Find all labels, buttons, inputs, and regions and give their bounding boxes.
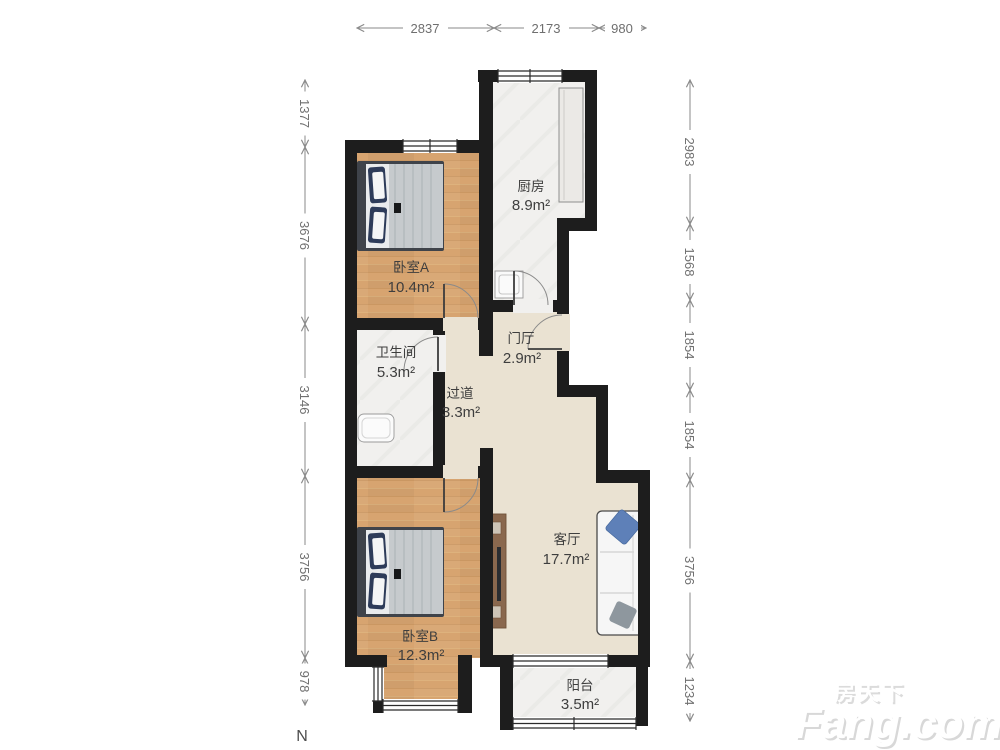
bed-a — [357, 161, 444, 251]
foyer-label: 门厅 — [508, 331, 535, 346]
kitchen-window — [498, 69, 562, 83]
kitchen-label: 厨房 — [518, 179, 545, 194]
bedroom-b-area: 12.3m² — [398, 647, 445, 664]
bedroom-a-area: 10.4m² — [388, 279, 435, 296]
dim-top-2: 2173 — [532, 21, 561, 36]
bay-window-left — [372, 667, 384, 701]
north-indicator: N — [296, 728, 308, 745]
dim-top-1: 2837 — [411, 21, 440, 36]
balcony-window — [513, 717, 636, 730]
balcony-slider — [513, 654, 608, 668]
dim-right-4: 1854 — [682, 421, 697, 450]
kitchen-sink — [495, 271, 523, 298]
bed-b — [357, 527, 444, 617]
dim-right-2: 1568 — [682, 248, 697, 277]
bedroom-a-window — [403, 139, 457, 153]
living-label: 客厅 — [554, 531, 581, 547]
sofa — [597, 509, 643, 635]
dim-left-4: 3756 — [297, 553, 312, 582]
kitchen-counter — [559, 88, 583, 202]
hallway-label: 过道 — [447, 386, 474, 401]
dim-right-5: 3756 — [682, 556, 697, 585]
hallway-area: 3.3m² — [442, 404, 480, 421]
bathroom-label: 卫生间 — [376, 345, 417, 360]
watermark-en: Fang.com — [795, 699, 1000, 748]
dim-left-2: 3676 — [297, 221, 312, 250]
dim-right-6: 1234 — [682, 677, 697, 706]
fang-watermark: 房天下 房天下 Fang.com Fang.com — [795, 681, 1000, 750]
living-area: 17.7m² — [543, 551, 590, 568]
dim-right-1: 2983 — [682, 138, 697, 167]
dim-top-3: 980 — [611, 21, 633, 36]
balcony-label: 阳台 — [567, 678, 594, 693]
kitchen-area: 8.9m² — [512, 197, 550, 214]
dim-left-1: 1377 — [297, 99, 312, 128]
foyer-area: 2.9m² — [503, 350, 541, 367]
balcony-area: 3.5m² — [561, 696, 599, 713]
bathtub — [358, 414, 394, 442]
bedroom-a-label: 卧室A — [393, 259, 429, 275]
dim-right-3: 1854 — [682, 331, 697, 360]
dim-left-3: 3146 — [297, 386, 312, 415]
dim-left-5: 978 — [297, 671, 312, 693]
bay-window-bottom — [383, 699, 458, 713]
floorplan-image: 厨房 8.9m² 卧室A 10.4m² 门厅 2.9m² 卫生间 5.3m² 过… — [0, 0, 1000, 750]
bathroom-area: 5.3m² — [377, 364, 415, 381]
floorplan-svg: 厨房 8.9m² 卧室A 10.4m² 门厅 2.9m² 卫生间 5.3m² 过… — [0, 0, 1000, 750]
bedroom-b-label: 卧室B — [402, 628, 438, 644]
